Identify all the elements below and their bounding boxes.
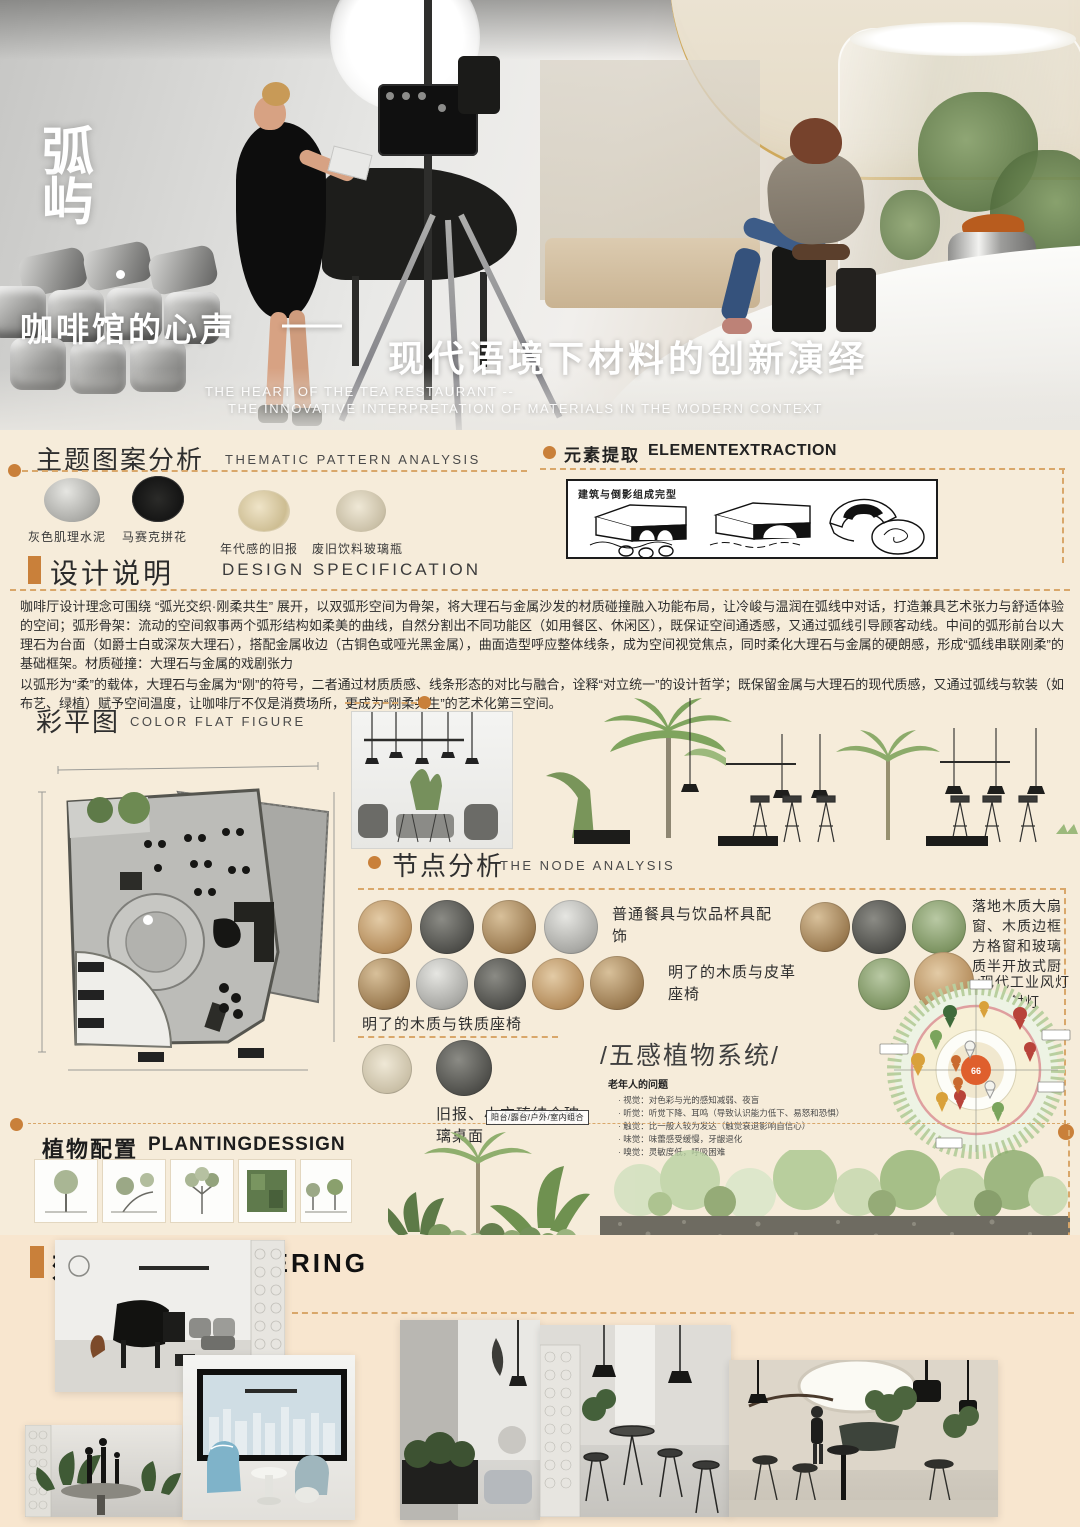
- plant-combo-label: 阳台/露台/户外/室内组合: [486, 1110, 589, 1125]
- material-swatch-newspaper: [238, 490, 290, 532]
- standing-woman-hair: [262, 82, 290, 106]
- node-thumb: [416, 958, 468, 1010]
- plant-sketch: [239, 1160, 295, 1222]
- accent-square: [28, 556, 41, 584]
- elevation-drawing-2: [530, 698, 1078, 850]
- node-thumb: [590, 956, 644, 1010]
- senses-item: 味觉：味蕾感受缓慢，牙龈退化: [618, 1133, 878, 1146]
- glass-cylinder-top: [850, 22, 1076, 56]
- hero-photo: 弧 屿 咖啡馆的心声 —— 现代语境下材料的创新演绎 THE HEART OF …: [0, 0, 1080, 430]
- poster-subtitle-en-2: THE INNOVATIVE INTERPRETATION OF MATERIA…: [228, 401, 823, 416]
- accent-dot: [418, 696, 431, 709]
- section-title-element-cn: 元素提取: [564, 441, 640, 466]
- plant-sketch: [35, 1160, 97, 1222]
- diagram-center-label: 66: [971, 1066, 981, 1076]
- logo-char-top: 弧: [34, 128, 104, 178]
- material-swatch-cement: [44, 478, 100, 522]
- poster-title-cn-2: 现代语境下材料的创新演绎: [388, 330, 868, 382]
- logo-char-bottom: 屿: [34, 178, 104, 228]
- swatch-label: 年代感的旧报: [220, 540, 298, 557]
- section-title-element-en: ELEMENTEXTRACTION: [648, 442, 837, 460]
- camera-head: [458, 56, 500, 114]
- divider-vertical: [1062, 468, 1064, 563]
- section-title-thematic-en: THEMATIC PATTERN ANALYSIS: [225, 452, 481, 467]
- accent-dot: [543, 446, 556, 459]
- divider: [10, 589, 1070, 591]
- material-swatch-mosaic: [132, 476, 184, 522]
- swatch-label: 灰色肌理水泥: [28, 528, 106, 545]
- node-panel-border-top: [358, 888, 1066, 890]
- render-hallway: [400, 1320, 540, 1520]
- title-dash: ——: [282, 308, 342, 342]
- node-thumb: [800, 902, 850, 952]
- node-label: 明了的木质与皮革座椅: [668, 962, 808, 1006]
- sitting-person-hair: [790, 118, 842, 164]
- section-title-flat-cn: 彩平图: [36, 702, 120, 739]
- section-title-flat-en: COLOR FLAT FIGURE: [130, 714, 306, 729]
- section-title-spec-en: DESIGN SPECIFICATION: [222, 560, 481, 580]
- logo-dot: [116, 270, 125, 279]
- node-thumb: [358, 958, 410, 1010]
- node-thumb: [358, 900, 412, 954]
- section-title-spec-cn: 设计说明: [50, 552, 174, 592]
- five-senses-diagram: 66: [878, 978, 1074, 1162]
- senses-subtitle: 老年人的问题: [608, 1076, 668, 1091]
- node-label: 明了的木质与铁质座椅: [362, 1014, 522, 1036]
- design-poster: 弧 屿 咖啡馆的心声 —— 现代语境下材料的创新演绎 THE HEART OF …: [0, 0, 1080, 1527]
- senses-item: 视觉：对色彩与光的感知减弱、夜盲: [618, 1094, 878, 1107]
- poster-title-cn: 咖啡馆的心声: [20, 303, 236, 351]
- spec-paragraph-1: 咖啡厅设计理念可围绕 “弧光交织·刚柔共生” 展开，以双弧形空间为骨架，将大理石…: [20, 597, 1064, 673]
- accent-dot: [10, 1118, 23, 1131]
- node-thumb: [436, 1040, 492, 1096]
- accent-dot: [8, 464, 21, 477]
- node-thumb: [532, 958, 584, 1010]
- element-sketch-box: 建筑与倒影组成完型: [566, 479, 938, 559]
- logo-vertical: 弧 屿: [34, 128, 104, 228]
- section-title-node-en: THE NODE ANALYSIS: [500, 858, 675, 873]
- divider: [540, 468, 1065, 470]
- render-cafe-b: [729, 1360, 998, 1517]
- accent-dot: [368, 856, 381, 869]
- floor-plan: [28, 752, 348, 1082]
- divider: [22, 470, 527, 472]
- plant-sketch: [301, 1160, 351, 1222]
- render-cafe-a: [540, 1325, 731, 1517]
- plant-sketch: [171, 1160, 233, 1222]
- section-title-node-cn: 节点分析: [392, 846, 504, 883]
- design-spec-text: 咖啡厅设计理念可围绕 “弧光交织·刚柔共生” 展开，以双弧形空间为骨架，将大理石…: [20, 597, 1064, 713]
- accent-square: [30, 1246, 44, 1278]
- senses-item: 触觉：比一般人较为发达（触觉衰退影响自信心）: [618, 1120, 878, 1133]
- node-thumb: [482, 900, 536, 954]
- render-plants-table: [25, 1425, 182, 1517]
- stool: [792, 244, 850, 260]
- swatch-label: 马赛克拼花: [122, 528, 187, 545]
- node-thumb: [474, 958, 526, 1010]
- coffee-machine: [836, 268, 876, 332]
- plant-sketch: [103, 1160, 165, 1222]
- node-thumb: [544, 900, 598, 954]
- node-thumb: [362, 1044, 412, 1094]
- section-title-planting-en: PLANTINGDESSIGN: [148, 1134, 346, 1156]
- material-swatch-bottle: [336, 490, 386, 532]
- node-thumb: [852, 900, 906, 954]
- node-thumb: [420, 900, 474, 954]
- senses-item: 听觉：听觉下降、耳鸣（导致认识能力低下、易怒和恐惧）: [618, 1107, 878, 1120]
- piano-leg: [352, 276, 359, 366]
- bridge-sketches: [568, 483, 938, 559]
- render-lounge: [183, 1355, 355, 1520]
- node-label: 普通餐具与饮品杯具配饰: [612, 904, 772, 948]
- senses-title: /五感植物系统/: [600, 1036, 780, 1072]
- divider: [292, 1312, 1074, 1314]
- swatch-label: 废旧饮料玻璃瓶: [312, 540, 403, 557]
- divider: [358, 1036, 558, 1038]
- node-thumb: [912, 900, 966, 954]
- divider: [345, 702, 417, 704]
- elevation-drawing-1: [352, 712, 512, 848]
- poster-subtitle-en-1: THE HEART OF THE TEA RESTAURANT --: [205, 384, 514, 399]
